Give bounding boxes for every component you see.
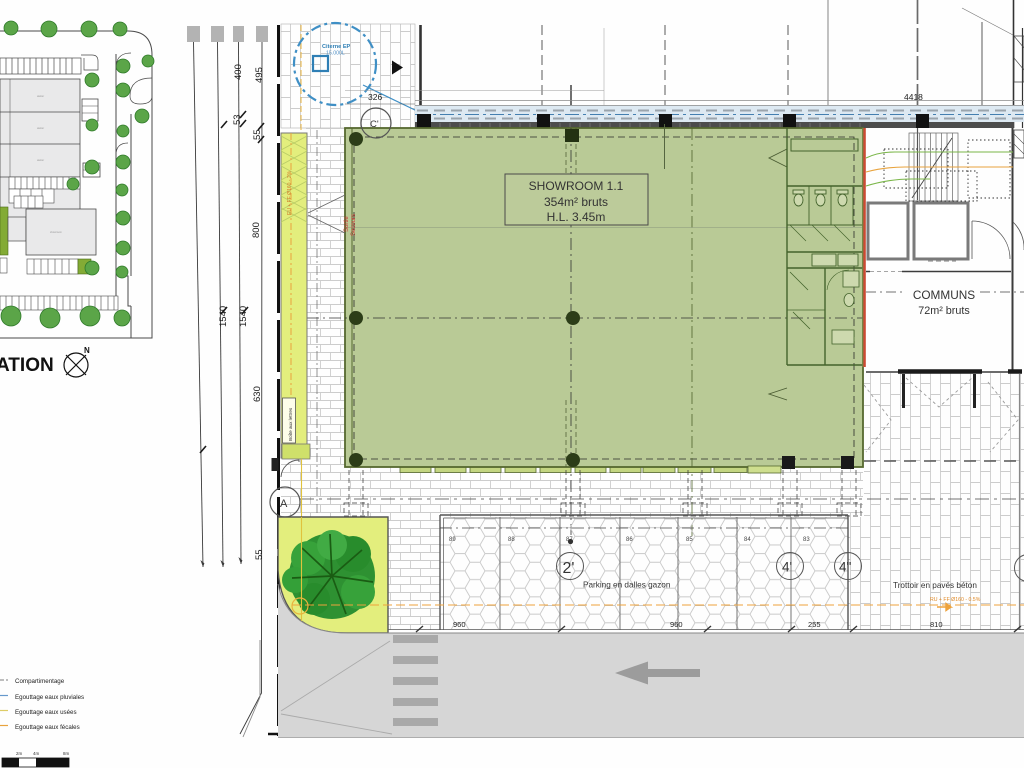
svg-text:88: 88: [508, 537, 515, 543]
svg-text:1540: 1540: [218, 306, 229, 327]
svg-text:4m: 4m: [33, 751, 40, 756]
svg-text:55: 55: [252, 129, 263, 140]
svg-text:atelier: atelier: [37, 94, 44, 98]
svg-text:72m² bruts: 72m² bruts: [918, 305, 970, 317]
svg-text:810: 810: [930, 620, 943, 629]
svg-text:Egouttage eaux pluviales: Egouttage eaux pluviales: [15, 694, 84, 701]
svg-text:960: 960: [453, 620, 466, 629]
svg-text:SHOWROOM 1.1: SHOWROOM 1.1: [529, 179, 624, 193]
svg-text:400: 400: [233, 64, 244, 80]
svg-text:COMMUNS: COMMUNS: [913, 288, 975, 302]
svg-text:Trottoir en pavés béton: Trottoir en pavés béton: [893, 581, 977, 590]
svg-text:Citerne EP: Citerne EP: [322, 44, 351, 50]
svg-text:1540: 1540: [238, 306, 249, 327]
svg-text:Boîte aux lettres: Boîte aux lettres: [288, 407, 293, 441]
svg-text:EU + FF Ø160 - 2%: EU + FF Ø160 - 2%: [287, 170, 293, 215]
svg-text:86: 86: [626, 537, 633, 543]
svg-text:630: 630: [252, 386, 263, 402]
svg-text:RU + FF Ø160 - 0.5%: RU + FF Ø160 - 0.5%: [930, 597, 981, 603]
svg-text:960: 960: [670, 620, 683, 629]
svg-text:N: N: [84, 346, 90, 355]
svg-text:84: 84: [744, 537, 751, 543]
svg-text:C': C': [370, 119, 379, 130]
svg-text:Egouttage eaux fécales: Egouttage eaux fécales: [15, 724, 80, 731]
svg-text:15.000L: 15.000L: [326, 51, 345, 57]
svg-text:2': 2': [563, 560, 575, 577]
svg-text:55: 55: [254, 549, 265, 560]
svg-text:354m² bruts: 354m² bruts: [544, 195, 608, 209]
svg-text:Egouttage eaux usées: Egouttage eaux usées: [15, 709, 77, 716]
svg-text:85: 85: [686, 537, 693, 543]
svg-text:ATION: ATION: [0, 355, 54, 376]
svg-text:326: 326: [368, 92, 382, 102]
svg-text:89: 89: [449, 537, 456, 543]
svg-text:255: 255: [808, 620, 821, 629]
svg-text:2m: 2m: [16, 751, 23, 756]
svg-text:showroom: showroom: [50, 230, 62, 234]
svg-text:A: A: [280, 498, 288, 510]
svg-text:8m: 8m: [63, 751, 70, 756]
svg-text:4": 4": [839, 560, 852, 575]
svg-text:83: 83: [803, 537, 810, 543]
svg-text:H.L. 3.45m: H.L. 3.45m: [547, 210, 606, 224]
svg-text:atelier: atelier: [37, 158, 44, 162]
svg-text:4': 4': [782, 560, 792, 575]
svg-text:Secours: Secours: [351, 214, 357, 236]
svg-text:Compartimentage: Compartimentage: [15, 678, 65, 685]
svg-text:495: 495: [254, 67, 265, 83]
svg-text:Sortie: Sortie: [344, 216, 350, 232]
svg-text:atelier: atelier: [37, 126, 44, 130]
svg-text:Parking en dalles gazon: Parking en dalles gazon: [583, 581, 671, 590]
svg-text:800: 800: [251, 222, 262, 238]
svg-text:53: 53: [232, 114, 243, 125]
